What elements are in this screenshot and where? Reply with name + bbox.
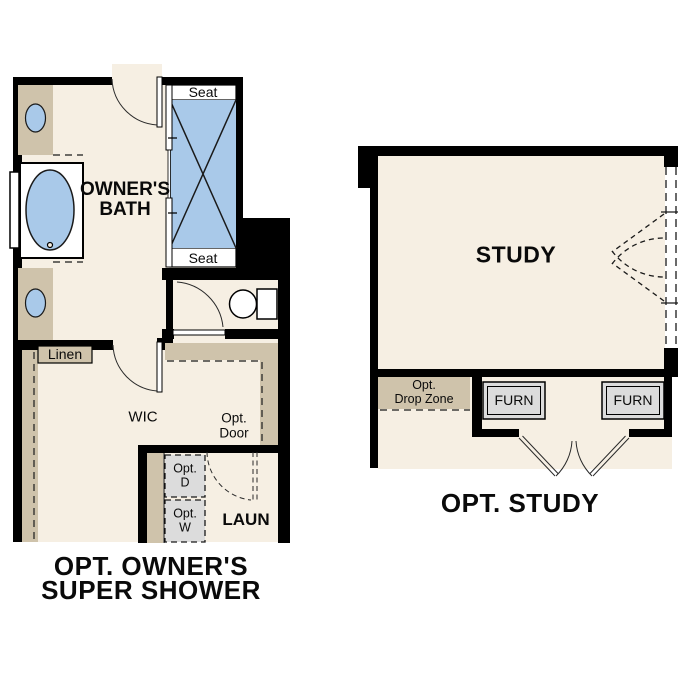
furnace-left-label: FURN [495,392,534,408]
wic-shelf-right [260,360,278,445]
furn-closet-wall-right [664,377,672,437]
laundry-shelf-left [147,453,163,543]
sink-bottom [26,289,46,317]
wic-shelf-left [22,350,38,542]
wall-laundry-left [138,445,147,543]
french-door-opening-dash [666,167,676,348]
left-plan-title: OPT. OWNER'SSUPER SHOWER [41,554,261,602]
study-wall-right-lower [664,348,678,377]
wall-toilet-bottom-b [225,329,290,339]
owners-bath-label: OWNER'SBATH [80,180,170,220]
shower-seat-top-label: Seat [189,84,218,100]
toilet-door-leaf [173,330,225,335]
study-wall-corner-right [664,146,678,167]
sink-top [26,104,46,132]
opt-washer-label: Opt.W [173,508,197,535]
furnace-right-label: FURN [614,392,653,408]
wall-top-left [13,77,112,85]
toilet-tank [257,289,277,319]
furn-closet-wall-left [472,377,482,437]
toilet-bowl [230,290,257,318]
furn-closet-wall-bottom-left [472,429,519,437]
wall-laundry-top [138,445,290,453]
bathtub [26,170,74,250]
shower-seat-bottom-label: Seat [189,250,218,266]
right-plan-title: OPT. STUDY [441,491,599,515]
study-label: STUDY [476,242,556,269]
wic-label: WIC [128,409,157,426]
linen-label: Linen [48,346,82,362]
opt-door-label: Opt.Door [219,412,248,441]
wic-door-leaf [157,342,162,392]
window [10,172,19,248]
drop-zone-label: Opt.Drop Zone [394,378,453,406]
wall-toilet-bottom-a [162,329,174,339]
owners-suite-plan [10,64,290,543]
study-wall-left [370,156,378,468]
wic-shelf-top [165,343,278,360]
floorplan-canvas: Seat Seat OWNER'SBATH Linen WIC Opt.Door… [0,0,687,687]
wall-toilet-left [166,280,173,331]
bath-entry-doorway-floor [112,64,162,85]
wall-right-lower [278,275,290,543]
study-wall-bottom [378,369,665,377]
wall-shower-right [236,77,243,277]
wall-block-right [243,218,290,275]
opt-dryer-label: Opt.D [173,463,197,490]
laundry-label: LAUN [222,510,269,530]
shower-glass-top [166,85,172,150]
study-wall-top [358,146,678,156]
tub-drain [48,243,53,248]
furn-closet-wall-bottom-right [629,429,672,437]
wall-shower-toilet [162,268,290,280]
study-plan [358,146,678,476]
bath-entry-door-leaf [157,77,162,127]
